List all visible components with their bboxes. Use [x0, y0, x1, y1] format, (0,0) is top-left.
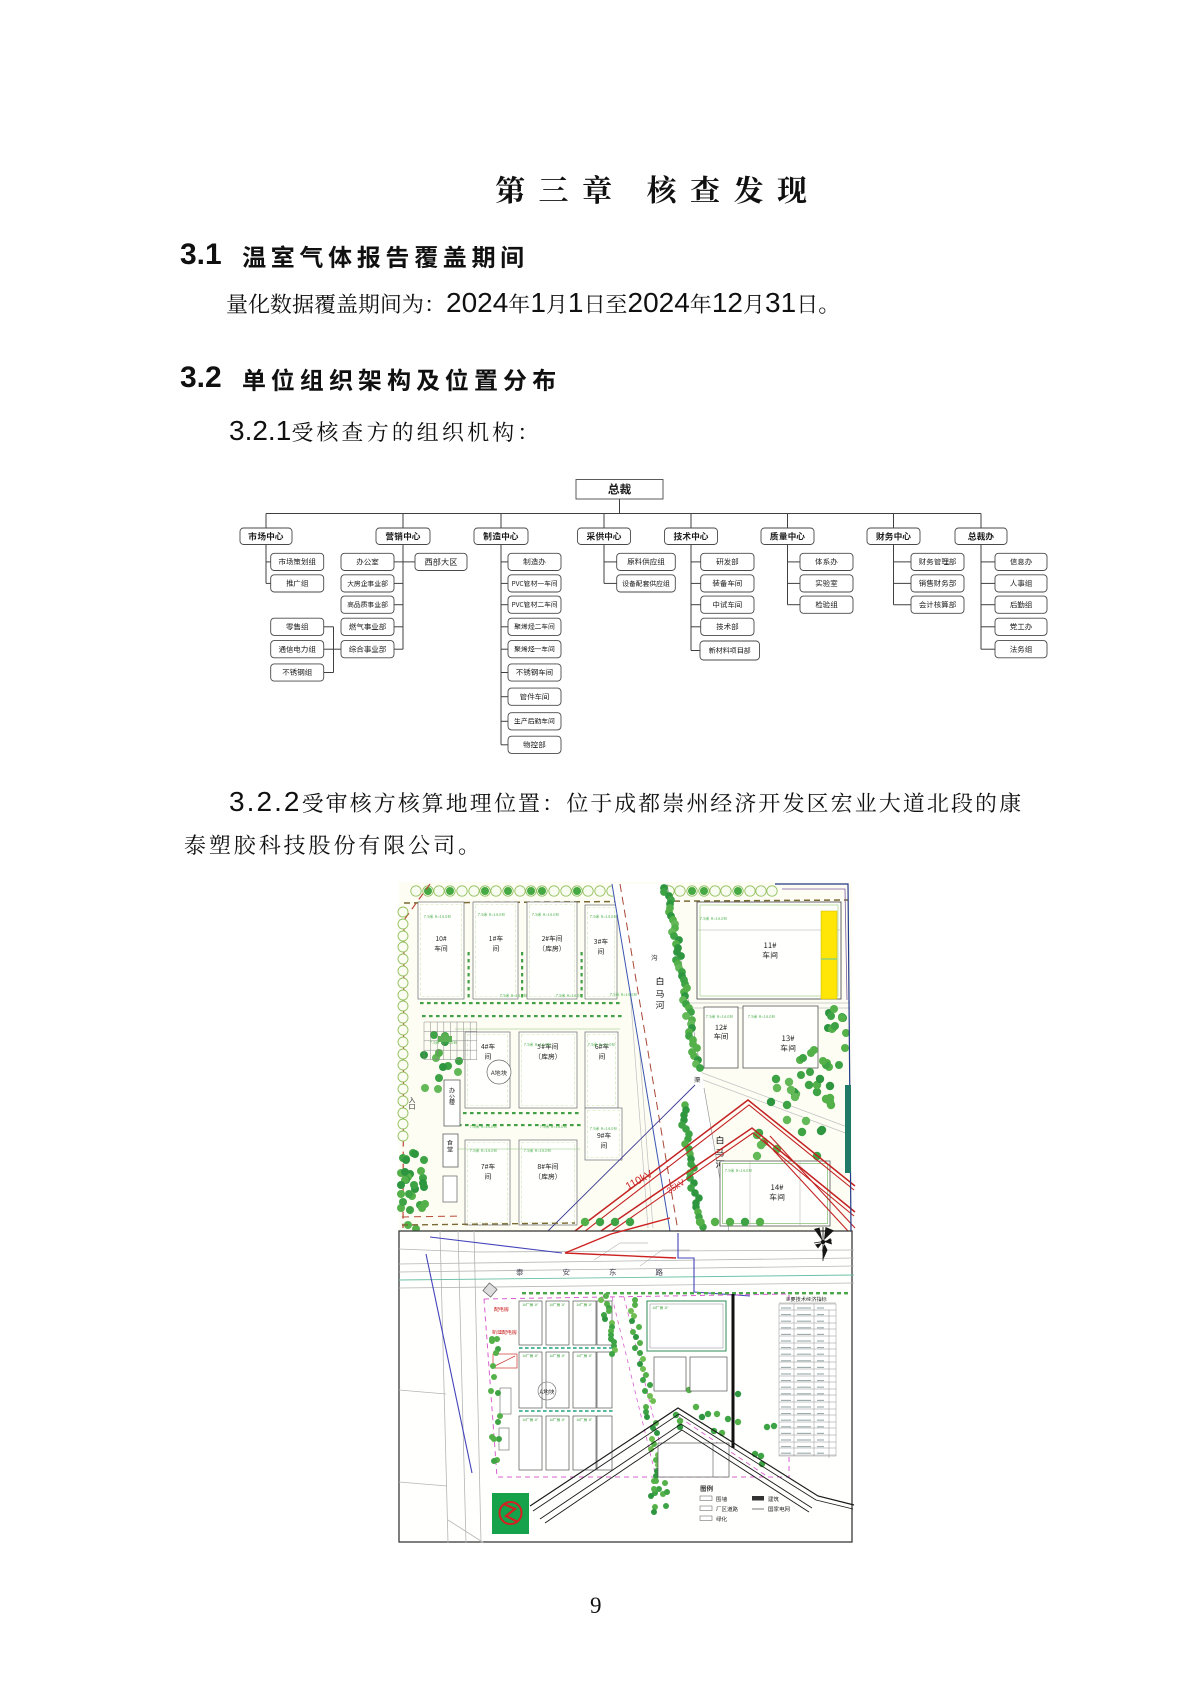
svg-text:办公室: 办公室 — [356, 557, 379, 568]
svg-text:技术中心: 技术中心 — [672, 529, 708, 542]
svg-text:技术部: 技术部 — [716, 622, 739, 633]
svg-text:聚烯烃一车间: 聚烯烃一车间 — [514, 644, 555, 654]
svg-text:沟: 沟 — [651, 952, 658, 962]
svg-text:不锈钢车间: 不锈钢车间 — [516, 667, 554, 678]
svg-text:间: 间 — [598, 946, 605, 956]
svg-text:厂区道路: 厂区道路 — [716, 1505, 739, 1513]
svg-text:7.5米 H=14.0M: 7.5米 H=14.0M — [556, 993, 583, 999]
svg-text:1#厂房 1F: 1#厂房 1F — [522, 1302, 538, 1308]
svg-text:7.5米 H=14.0M: 7.5米 H=14.0M — [590, 914, 617, 920]
svg-text:1#车: 1#车 — [489, 933, 504, 943]
svg-text:制造中心: 制造中心 — [483, 529, 518, 542]
svg-text:2#车间: 2#车间 — [540, 933, 562, 943]
svg-text:4#车: 4#车 — [481, 1041, 496, 1051]
svg-text:7.5米 H=14.0M: 7.5米 H=14.0M — [588, 1042, 615, 1048]
svg-text:原料供应组: 原料供应组 — [627, 557, 665, 568]
svg-text:国家电网: 国家电网 — [768, 1505, 791, 1513]
svg-text:后勤组: 后勤组 — [1010, 599, 1033, 610]
svg-text:间: 间 — [601, 1140, 608, 1150]
svg-text:A地块: A地块 — [539, 1387, 554, 1396]
svg-text:白马河: 白马河 — [654, 976, 667, 1012]
svg-text:物控部: 物控部 — [522, 740, 546, 751]
svg-text:10#: 10# — [435, 933, 447, 943]
svg-text:车间: 车间 — [762, 950, 778, 961]
svg-text:PVC管材一车间: PVC管材一车间 — [511, 578, 558, 588]
svg-text:图例: 图例 — [700, 1483, 714, 1493]
svg-text:1#厂房 1F: 1#厂房 1F — [549, 1302, 565, 1308]
svg-text:7.5米 H=14.0M: 7.5米 H=14.0M — [532, 912, 559, 918]
svg-text:7.5米 H=14.0M: 7.5米 H=14.0M — [524, 1148, 551, 1154]
svg-text:车间: 车间 — [780, 1043, 796, 1054]
svg-text:1#厂房 1F: 1#厂房 1F — [522, 1417, 538, 1423]
svg-text:7.5米 H=14.0M: 7.5米 H=14.0M — [470, 1124, 497, 1130]
svg-text:1#厂房 1F: 1#厂房 1F — [652, 1305, 668, 1311]
svg-text:会计核算部: 会计核算部 — [919, 599, 957, 610]
svg-text:1#厂房 1F: 1#厂房 1F — [549, 1353, 565, 1359]
svg-text:7.5米 H=14.0M: 7.5米 H=14.0M — [524, 1042, 551, 1048]
svg-text:党工办: 党工办 — [1010, 622, 1033, 633]
svg-text:零售组: 零售组 — [286, 622, 309, 633]
svg-text:车间: 车间 — [714, 1031, 729, 1042]
svg-text:办公楼: 办公楼 — [448, 1087, 457, 1106]
svg-text:8#车间: 8#车间 — [537, 1161, 558, 1171]
svg-text:法务组: 法务组 — [1010, 644, 1033, 655]
svg-text:人事组: 人事组 — [1010, 578, 1033, 589]
svg-text:1#厂房 1F: 1#厂房 1F — [576, 1302, 592, 1308]
svg-text:管件车间: 管件车间 — [520, 691, 550, 702]
svg-text:7.5米 H=14.0M: 7.5米 H=14.0M — [424, 914, 451, 920]
svg-text:采供中心: 采供中心 — [586, 529, 621, 542]
svg-text:燃气事业部: 燃气事业部 — [349, 622, 387, 633]
svg-text:7.5米 H=14.0M: 7.5米 H=14.0M — [700, 916, 727, 922]
svg-text:1#厂房 1F: 1#厂房 1F — [576, 1353, 592, 1359]
svg-text:间: 间 — [493, 943, 500, 953]
svg-text:（库房）: （库房） — [534, 1051, 561, 1061]
svg-text:7.5米 H=14.0M: 7.5米 H=14.0M — [610, 992, 637, 998]
svg-text:间: 间 — [485, 1051, 492, 1061]
svg-text:市场策划组: 市场策划组 — [278, 557, 316, 568]
svg-text:PVC管材二车间: PVC管材二车间 — [511, 599, 558, 609]
svg-text:7.5米 H=14.0M: 7.5米 H=14.0M — [470, 1148, 497, 1154]
svg-text:检验组: 检验组 — [815, 599, 838, 610]
svg-text:食堂: 食堂 — [446, 1139, 455, 1152]
svg-text:通信电力组: 通信电力组 — [278, 644, 316, 655]
svg-text:7#车: 7#车 — [481, 1161, 496, 1171]
svg-text:研发部: 研发部 — [716, 557, 739, 568]
svg-text:绿化: 绿化 — [715, 1515, 728, 1523]
svg-text:总裁: 总裁 — [608, 481, 632, 498]
svg-text:7.5米 H=14.0M: 7.5米 H=14.0M — [500, 993, 527, 999]
svg-text:7.5米 H=14.0M: 7.5米 H=14.0M — [725, 1168, 752, 1174]
svg-text:聚烯烃二车间: 聚烯烃二车间 — [514, 621, 555, 631]
svg-text:信息办: 信息办 — [1010, 557, 1033, 568]
svg-text:实验室: 实验室 — [815, 578, 838, 589]
svg-text:西部大区: 西部大区 — [425, 556, 459, 568]
svg-text:配电房: 配电房 — [494, 1306, 509, 1313]
svg-text:车间: 车间 — [769, 1192, 785, 1203]
svg-text:财务管理部: 财务管理部 — [918, 557, 957, 568]
svg-text:高品质事业部: 高品质事业部 — [347, 599, 388, 609]
svg-text:1#厂房 1F: 1#厂房 1F — [576, 1417, 592, 1423]
svg-text:大房企事业部: 大房企事业部 — [346, 578, 388, 588]
svg-text:3#车: 3#车 — [593, 936, 609, 946]
svg-text:渠: 渠 — [694, 1074, 701, 1084]
svg-text:7.5米 H=14.0M: 7.5米 H=14.0M — [748, 1014, 775, 1020]
svg-text:设备配套供应组: 设备配套供应组 — [622, 578, 670, 588]
svg-text:主要技术经济指标: 主要技术经济指标 — [785, 1296, 827, 1303]
svg-text:装备车间: 装备车间 — [712, 578, 742, 589]
svg-text:围墙: 围墙 — [716, 1495, 728, 1503]
svg-text:7.5米 H=14.0M: 7.5米 H=14.0M — [706, 1014, 733, 1020]
svg-text:（库房）: （库房） — [538, 943, 565, 953]
svg-text:体系办: 体系办 — [815, 557, 838, 568]
svg-text:（库房）: （库房） — [534, 1171, 561, 1181]
svg-text:推广组: 推广组 — [286, 578, 309, 589]
svg-text:不锈钢组: 不锈钢组 — [282, 667, 312, 678]
svg-text:7.5米 H=14.0M: 7.5米 H=14.0M — [430, 1040, 457, 1046]
svg-text:财务中心: 财务中心 — [876, 529, 911, 542]
svg-text:总裁办: 总裁办 — [968, 529, 995, 542]
svg-text:7.5米 H=14.0M: 7.5米 H=14.0M — [540, 1124, 567, 1130]
svg-text:销售财务部: 销售财务部 — [919, 578, 957, 589]
svg-text:泰安东路: 泰安东路 — [516, 1267, 702, 1278]
svg-text:7.5米 H=14.0M: 7.5米 H=14.0M — [590, 1126, 617, 1132]
svg-text:生产后勤车间: 生产后勤车间 — [514, 716, 555, 726]
svg-text:7.5米 H=14.0M: 7.5米 H=14.0M — [478, 912, 505, 918]
svg-text:入口: 入口 — [407, 1096, 417, 1110]
svg-text:1#厂房 1F: 1#厂房 1F — [522, 1353, 538, 1359]
svg-text:综合事业部: 综合事业部 — [349, 644, 387, 655]
svg-text:间: 间 — [485, 1171, 492, 1181]
svg-text:新建配电房: 新建配电房 — [492, 1329, 517, 1336]
svg-text:间: 间 — [599, 1051, 606, 1061]
svg-text:市场中心: 市场中心 — [248, 529, 283, 542]
svg-text:制造办: 制造办 — [523, 557, 546, 568]
svg-text:A地块: A地块 — [491, 1068, 508, 1077]
svg-text:1#厂房 1F: 1#厂房 1F — [549, 1417, 565, 1423]
svg-text:质量中心: 质量中心 — [769, 529, 805, 542]
svg-text:中试车间: 中试车间 — [712, 599, 742, 610]
svg-text:营销中心: 营销中心 — [385, 529, 420, 542]
svg-text:车间: 车间 — [434, 943, 448, 953]
svg-text:建筑: 建筑 — [767, 1495, 780, 1503]
svg-text:新材料项目部: 新材料项目部 — [709, 646, 751, 656]
